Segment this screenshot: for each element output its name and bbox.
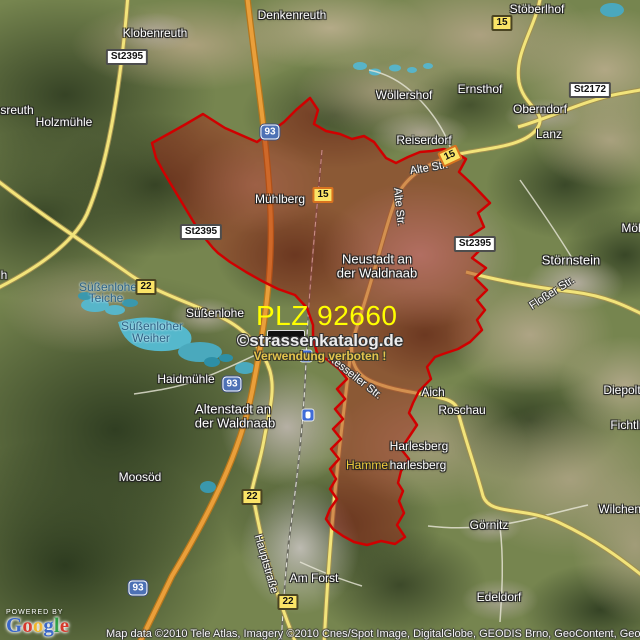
road-shield: 15 — [312, 187, 333, 203]
map-attribution: Map data ©2010 Tele Atlas, Imagery ©2010… — [106, 628, 640, 640]
place-label: Möh — [621, 221, 640, 235]
place-label: Wöllershof — [376, 88, 433, 102]
water-label: Teiche — [89, 291, 124, 305]
water-label: Süßenloher — [79, 280, 141, 294]
place-label: der Waldnaab — [337, 266, 417, 281]
place-label: Neustadt an — [342, 252, 412, 267]
place-label: Oberndorf — [513, 102, 567, 116]
google-logo[interactable]: Google — [6, 615, 69, 636]
map-canvas[interactable]: DenkenreuthKlobenreuthStöberlhofsreuthHo… — [0, 0, 640, 640]
place-label: Wilchenre — [598, 502, 640, 516]
place-label: Denkenreuth — [258, 8, 327, 22]
place-label: Edeldorf — [477, 590, 522, 604]
road-shield: St2172 — [569, 82, 611, 98]
train-station-icon — [303, 410, 314, 421]
google-logo-letter: G — [6, 613, 22, 637]
road-shield: 93 — [222, 377, 241, 392]
road-shield: St2395 — [454, 236, 496, 252]
place-label: Moosöd — [119, 470, 162, 484]
road-shield: 22 — [135, 279, 156, 295]
place-label: Süßenlohe — [186, 306, 244, 320]
street-label: Floßer Str. — [527, 274, 577, 312]
place-label: Hammer — [346, 458, 392, 472]
place-label: Mühlberg — [255, 192, 305, 206]
place-label: Görnitz — [470, 518, 509, 532]
place-label: sreuth — [0, 103, 33, 117]
place-label: harlesberg — [390, 458, 447, 472]
water-label: Weiher — [132, 331, 170, 345]
plz-area-label: PLZ 92660 — [256, 300, 398, 332]
water-label: Süßenloher — [121, 319, 183, 333]
street-label: Alte Str. — [391, 187, 407, 227]
google-logo-letter: o — [22, 613, 33, 637]
place-label: Diepolts — [603, 383, 640, 397]
street-label: Hauptstraße — [252, 533, 280, 594]
place-label: Lanz — [536, 127, 562, 141]
road-shield: 15 — [491, 15, 512, 31]
place-label: Haidmühle — [157, 372, 214, 386]
place-label: Reiserdorf — [396, 133, 451, 147]
street-label: Alte Str. — [409, 159, 449, 178]
road-shield: 22 — [241, 489, 262, 505]
place-label: Roschau — [438, 403, 485, 417]
place-label: h — [1, 268, 8, 282]
road-shield: 93 — [128, 581, 147, 596]
watermark-warning: Verwendung verboten ! — [254, 349, 387, 363]
road-shield: 93 — [260, 125, 279, 140]
place-label: Harlesberg — [390, 439, 449, 453]
place-label: Störnstein — [542, 253, 601, 268]
road-shield: 22 — [277, 594, 298, 610]
place-label: Stöberlhof — [510, 2, 565, 16]
watermark-text: ©strassenkatalog.de — [237, 331, 404, 351]
place-label: Aich — [421, 385, 444, 399]
road-shield: St2395 — [106, 49, 148, 65]
place-label: Am Forst — [290, 571, 339, 585]
place-label: der Waldnaab — [195, 416, 275, 431]
place-label: Fichtln — [610, 418, 640, 432]
place-label: Altenstadt an — [195, 402, 271, 417]
road-shield: St2395 — [180, 224, 222, 240]
place-label: Ernsthof — [458, 82, 503, 96]
google-logo-letter: o — [33, 613, 44, 637]
place-label: Klobenreuth — [123, 26, 188, 40]
google-logo-letter: g — [43, 613, 54, 637]
google-logo-letter: e — [60, 613, 69, 637]
place-label: Holzmühle — [36, 115, 93, 129]
road-shield: 15 — [437, 144, 463, 167]
